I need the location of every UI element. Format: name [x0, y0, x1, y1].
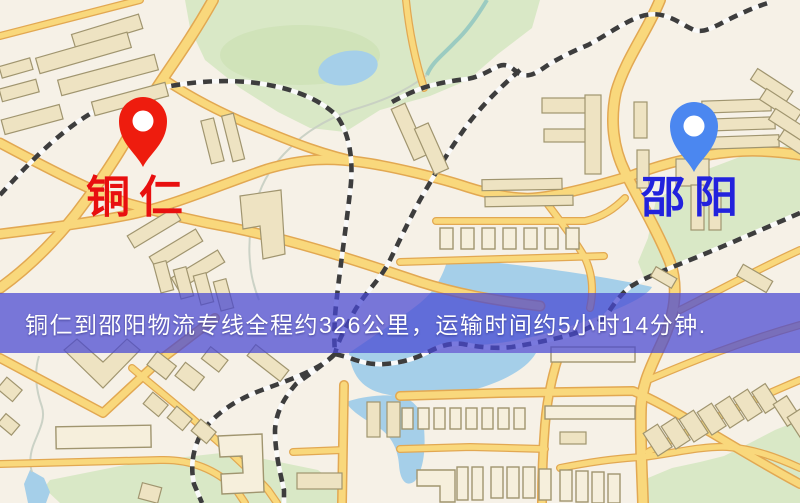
logistics-route-map: 铜仁 邵阳 铜仁到邵阳物流专线全程约326公里，运输时间约5小时14分钟.: [0, 0, 800, 503]
origin-city-label: 铜仁: [86, 176, 192, 220]
destination-marker[interactable]: [668, 102, 720, 179]
destination-city-label: 邵阳: [641, 176, 747, 220]
origin-marker[interactable]: [117, 97, 169, 174]
map-canvas[interactable]: [0, 0, 800, 503]
blue-pin-icon: [668, 102, 720, 174]
route-info-text: 铜仁到邵阳物流专线全程约326公里，运输时间约5小时14分钟.: [25, 306, 707, 340]
red-pin-icon: [117, 97, 169, 169]
route-info-banner: 铜仁到邵阳物流专线全程约326公里，运输时间约5小时14分钟.: [0, 293, 800, 353]
